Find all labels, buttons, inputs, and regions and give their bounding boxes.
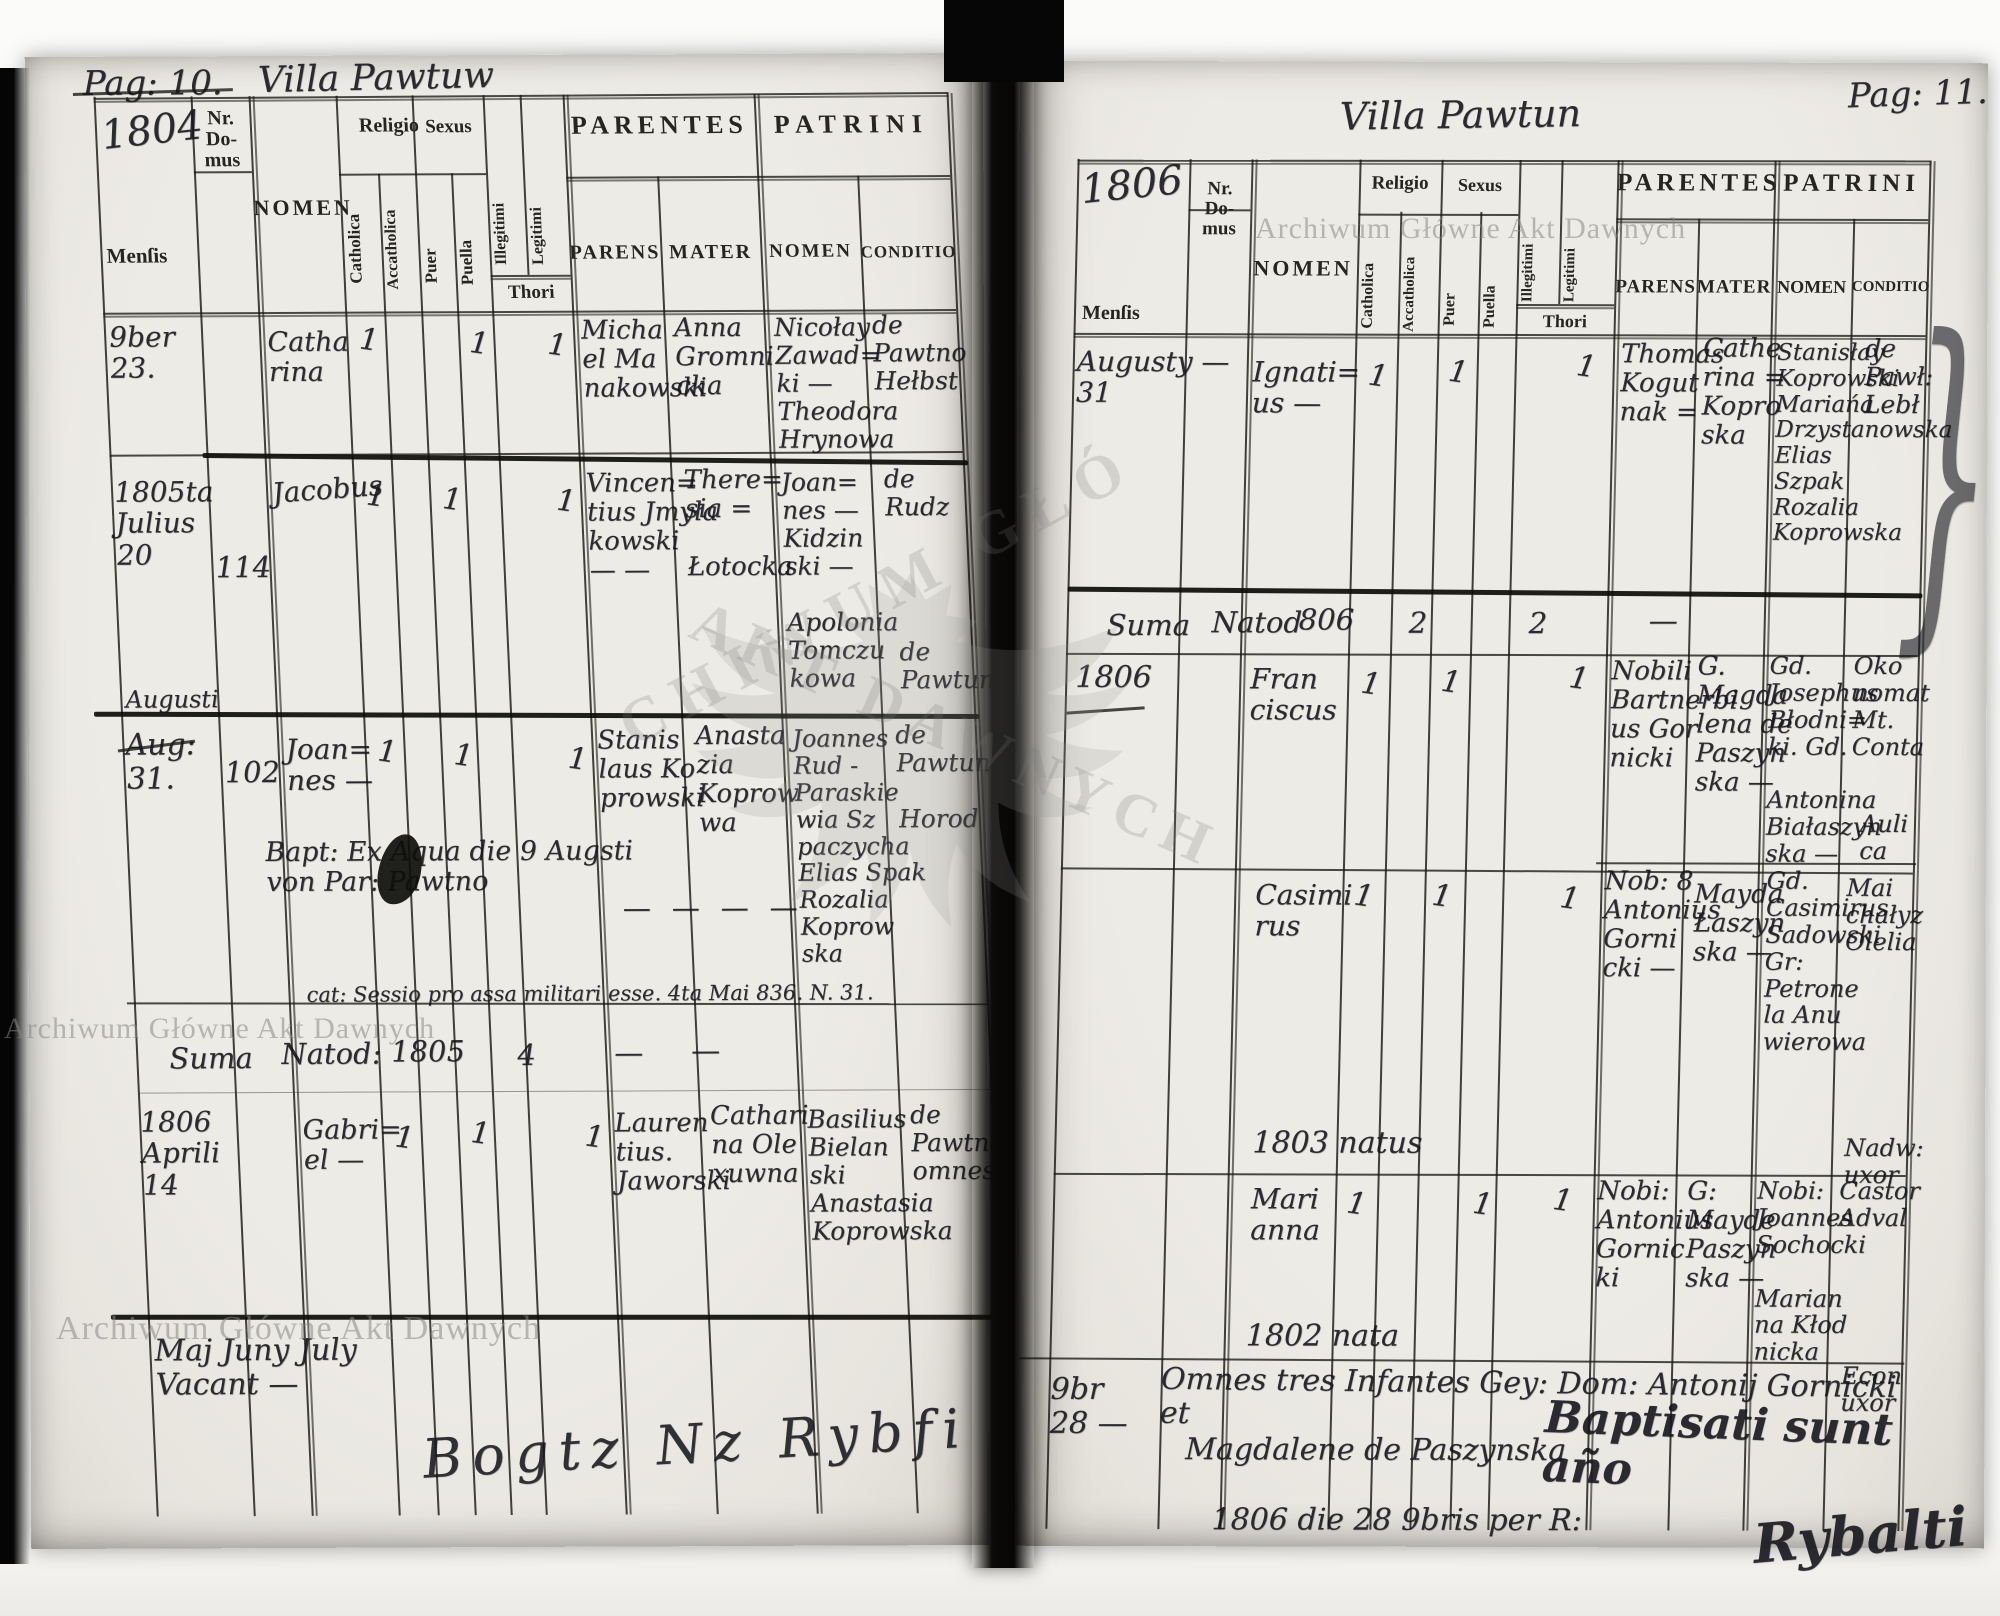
rule-h <box>94 712 979 719</box>
tick-legitimi: 1 <box>1574 349 1598 385</box>
summary-puer: 2 <box>1408 607 1427 640</box>
rule-h <box>1067 587 1922 599</box>
summary-dash: — <box>690 1034 720 1067</box>
record-mensis: 1805ta Julius 20 <box>113 476 216 570</box>
note-dashes: — — — — <box>622 892 804 924</box>
rule-v <box>94 97 159 1517</box>
col-header-puer: Puer <box>1442 254 1478 326</box>
col-header-parentes: PARENTES <box>1617 170 1775 197</box>
col-header-mater: MATER <box>660 242 761 263</box>
record-nomen: Gabri= el — <box>302 1115 404 1176</box>
rule-h <box>1073 333 1925 337</box>
footer-scribble: Bogtz Nz Rybfi <box>420 1399 973 1490</box>
rule-v <box>1487 160 1521 1530</box>
rule-v <box>249 96 314 1516</box>
rule-v <box>483 95 548 1515</box>
priest-signature: Rybalti <box>1752 1496 1970 1574</box>
watermark-label-bottom-left: Archiwum Główne Akt Dawnych <box>56 1310 541 1348</box>
year-underline <box>1067 706 1145 714</box>
tick-catholica: 1 <box>358 322 380 358</box>
note-baptism: Bapt: Ex Aqua die 9 Augsti von Par: Pawt… <box>265 836 698 898</box>
record-conditio-a: Mai chałyz Olelia <box>1845 875 1924 956</box>
col-header-puella: Puella <box>1482 250 1516 328</box>
watermark-label-top-right: Archiwum Główne Akt Dawnych <box>1255 212 1686 246</box>
tick-catholica: 1 <box>376 734 398 770</box>
tick-puer: 1 <box>452 738 474 774</box>
col-header-mater: MATER <box>1696 278 1771 298</box>
col-header-parens: PARENS <box>1614 277 1696 297</box>
record-nomen: Fran ciscus <box>1249 663 1338 726</box>
col-header-legitimi: Legitimi <box>527 163 568 265</box>
record-mater: Anasta zia Koprow wa <box>694 722 801 839</box>
record-birth-note: 1803 natus <box>1252 1126 1423 1160</box>
tick-puer: 1 <box>1439 665 1463 701</box>
col-header-catholica: Catholica <box>343 164 382 284</box>
tick-catholica: 1 <box>1359 666 1383 702</box>
year-right: 1806 <box>1079 158 1184 213</box>
col-header-patrini: PATRINI <box>754 110 948 138</box>
col-header-nomen: NOMEN <box>253 196 341 219</box>
tick-legitimi: 1 <box>555 484 577 520</box>
col-header-parens: PARENS <box>569 242 661 263</box>
record-mensis: 9ber 23. <box>109 321 177 384</box>
col-header-patrini: PATRINI <box>1774 171 1930 198</box>
col-header-thori: Thori <box>1516 312 1614 331</box>
tick-legitimi: 1 <box>1567 661 1591 697</box>
joint-note-overlay: Baptisati sunt año <box>1541 1393 1958 1507</box>
summary-dash: — <box>613 1036 643 1069</box>
record-birth-note: 1802 nata <box>1246 1319 1400 1353</box>
joint-note-line2: Magdalene de Paszynska <box>1185 1433 1567 1468</box>
record-conditio: de Pawtno Hełbst <box>871 311 968 395</box>
col-header-accatholica: Accatholica <box>380 159 419 289</box>
col-header-mensis: Menſis <box>106 244 191 266</box>
record-nomen: Mari anna <box>1250 1183 1321 1246</box>
watermark-label-mid-left: Archiwum Główne Akt Dawnych <box>4 1012 435 1046</box>
record-conditio-a: Castor Adval <box>1838 1178 1920 1232</box>
tick-legitimi: 1 <box>546 328 568 364</box>
rule-h <box>1078 160 1932 163</box>
col-header-nr-domus: Nr. Do- mus <box>1192 179 1247 239</box>
binding-tape-top <box>944 0 1064 82</box>
summary-puer: 4 <box>517 1039 537 1072</box>
col-header-patrini-nomen: NOMEN <box>1771 278 1851 297</box>
tick-legitimi: 1 <box>1551 1183 1575 1219</box>
record-conditio-a: Oko nomat Mt. Conta <box>1852 653 1975 761</box>
rule-v <box>191 96 256 1516</box>
col-header-puer: Puer <box>420 215 455 283</box>
register-scan: Pag: 10. Villa Pawtuw <box>0 0 2000 1616</box>
col-header-parentes: PARENTES <box>563 111 755 139</box>
col-header-mensis: Menſis <box>1082 303 1172 324</box>
rule-v <box>1409 160 1443 1530</box>
summary-dash: — <box>1648 604 1678 637</box>
col-header-sexus: Sexus <box>1441 176 1519 195</box>
col-header-religio: Religio <box>1359 174 1441 194</box>
col-header-puella: Puella <box>456 210 490 285</box>
record-mensis: 1806 Aprili 14 <box>140 1106 223 1200</box>
tick-catholica: 1 <box>1366 358 1390 394</box>
record-nomen: Catha rina <box>267 328 351 389</box>
tick-catholica: 1 <box>1344 1186 1368 1222</box>
summary-label: Suma <box>1106 609 1190 642</box>
scan-left-edge <box>0 68 30 1564</box>
record-mater: Cathari na Ole xuwna <box>709 1102 812 1190</box>
record-mensis: 9br 28 — <box>1049 1373 1128 1440</box>
rule-v <box>1045 159 1079 1529</box>
col-header-conditio: CONDITIO <box>860 243 954 261</box>
tick-legitimi: 1 <box>1558 881 1582 917</box>
record-mensis: 1806 <box>1075 661 1152 695</box>
joint-note-line3: 1806 die 28 9bris per R: <box>1211 1503 1582 1538</box>
tick-puella: 1 <box>468 326 490 362</box>
tick-legitimi: 1 <box>583 1119 605 1155</box>
col-header-sexus: Sexus <box>413 117 485 137</box>
col-header-thori: Thori <box>491 283 572 303</box>
record-nr-domus: 114 <box>215 551 272 584</box>
col-header-nomen: NOMEN <box>1249 256 1358 279</box>
record-nr-domus: 102 <box>224 756 281 789</box>
summary-legitimi: 2 <box>1528 607 1547 640</box>
record-mensis: Aug: 31. <box>125 728 198 795</box>
record-conditio-b: Auli ca <box>1859 811 1908 865</box>
record-nomen: Joan= nes — <box>285 734 374 797</box>
summary-year: 806 <box>1298 603 1354 636</box>
note-militari: cat: Sessio pro assa militari esse. 4ta … <box>306 981 947 1007</box>
record-patrini: Joan= nes — Kidzin ski — Apolonia Tomczu… <box>780 468 901 692</box>
year-left: 1804 <box>98 103 205 159</box>
record-nomen: Casimi rus <box>1254 879 1352 942</box>
record-nomen: Ignati= us — <box>1252 356 1361 419</box>
table-right: 1806 Nr. Do- mus NOMEN Menſis Religio Se… <box>985 61 1988 1548</box>
rule-v <box>336 96 401 1516</box>
tick-puer: 1 <box>441 482 463 518</box>
binding-gutter <box>972 48 1034 1568</box>
tick-puella: 1 <box>1470 1187 1494 1223</box>
tick-puer: 1 <box>1446 355 1470 391</box>
record-conditio-a: de Rudz <box>883 465 950 521</box>
col-header-patrini-nomen: NOMEN <box>760 241 861 261</box>
record-mater: Cathe rina = Kopro ska <box>1701 335 1787 452</box>
tick-catholica: 1 <box>393 1120 415 1156</box>
record-mater: Anna Gromni cka <box>673 314 775 402</box>
record-mater: There= sia = Łotocka <box>683 466 793 583</box>
note-month: Augusti <box>125 686 219 713</box>
rule-h <box>194 171 252 173</box>
tick-puer: 1 <box>469 1116 491 1152</box>
col-header-nr-domus: Nr. Do- mus <box>195 108 248 171</box>
tick-legitimi: 1 <box>567 742 589 778</box>
record-parens: Stanis laus Ko prowski <box>597 726 705 814</box>
rule-v <box>412 95 477 1515</box>
summary-natorum: Natod <box>1211 606 1302 639</box>
summary-label: Suma <box>169 1042 254 1075</box>
tick-catholica: 1 <box>365 478 387 514</box>
tick-catholica: 1 <box>1352 878 1376 914</box>
conditio-brace: } <box>1893 275 1998 678</box>
rule-h <box>1516 304 1614 306</box>
rule-h <box>491 275 571 277</box>
tick-puer: 1 <box>1430 879 1454 915</box>
col-header-illegitimi: Illegitimi <box>490 163 527 265</box>
record-mensis: Augusty — 31 <box>1076 346 1230 409</box>
rule-h <box>138 1089 991 1094</box>
page-right: Villa Pawtun Pag: 11. <box>1016 61 1988 1549</box>
